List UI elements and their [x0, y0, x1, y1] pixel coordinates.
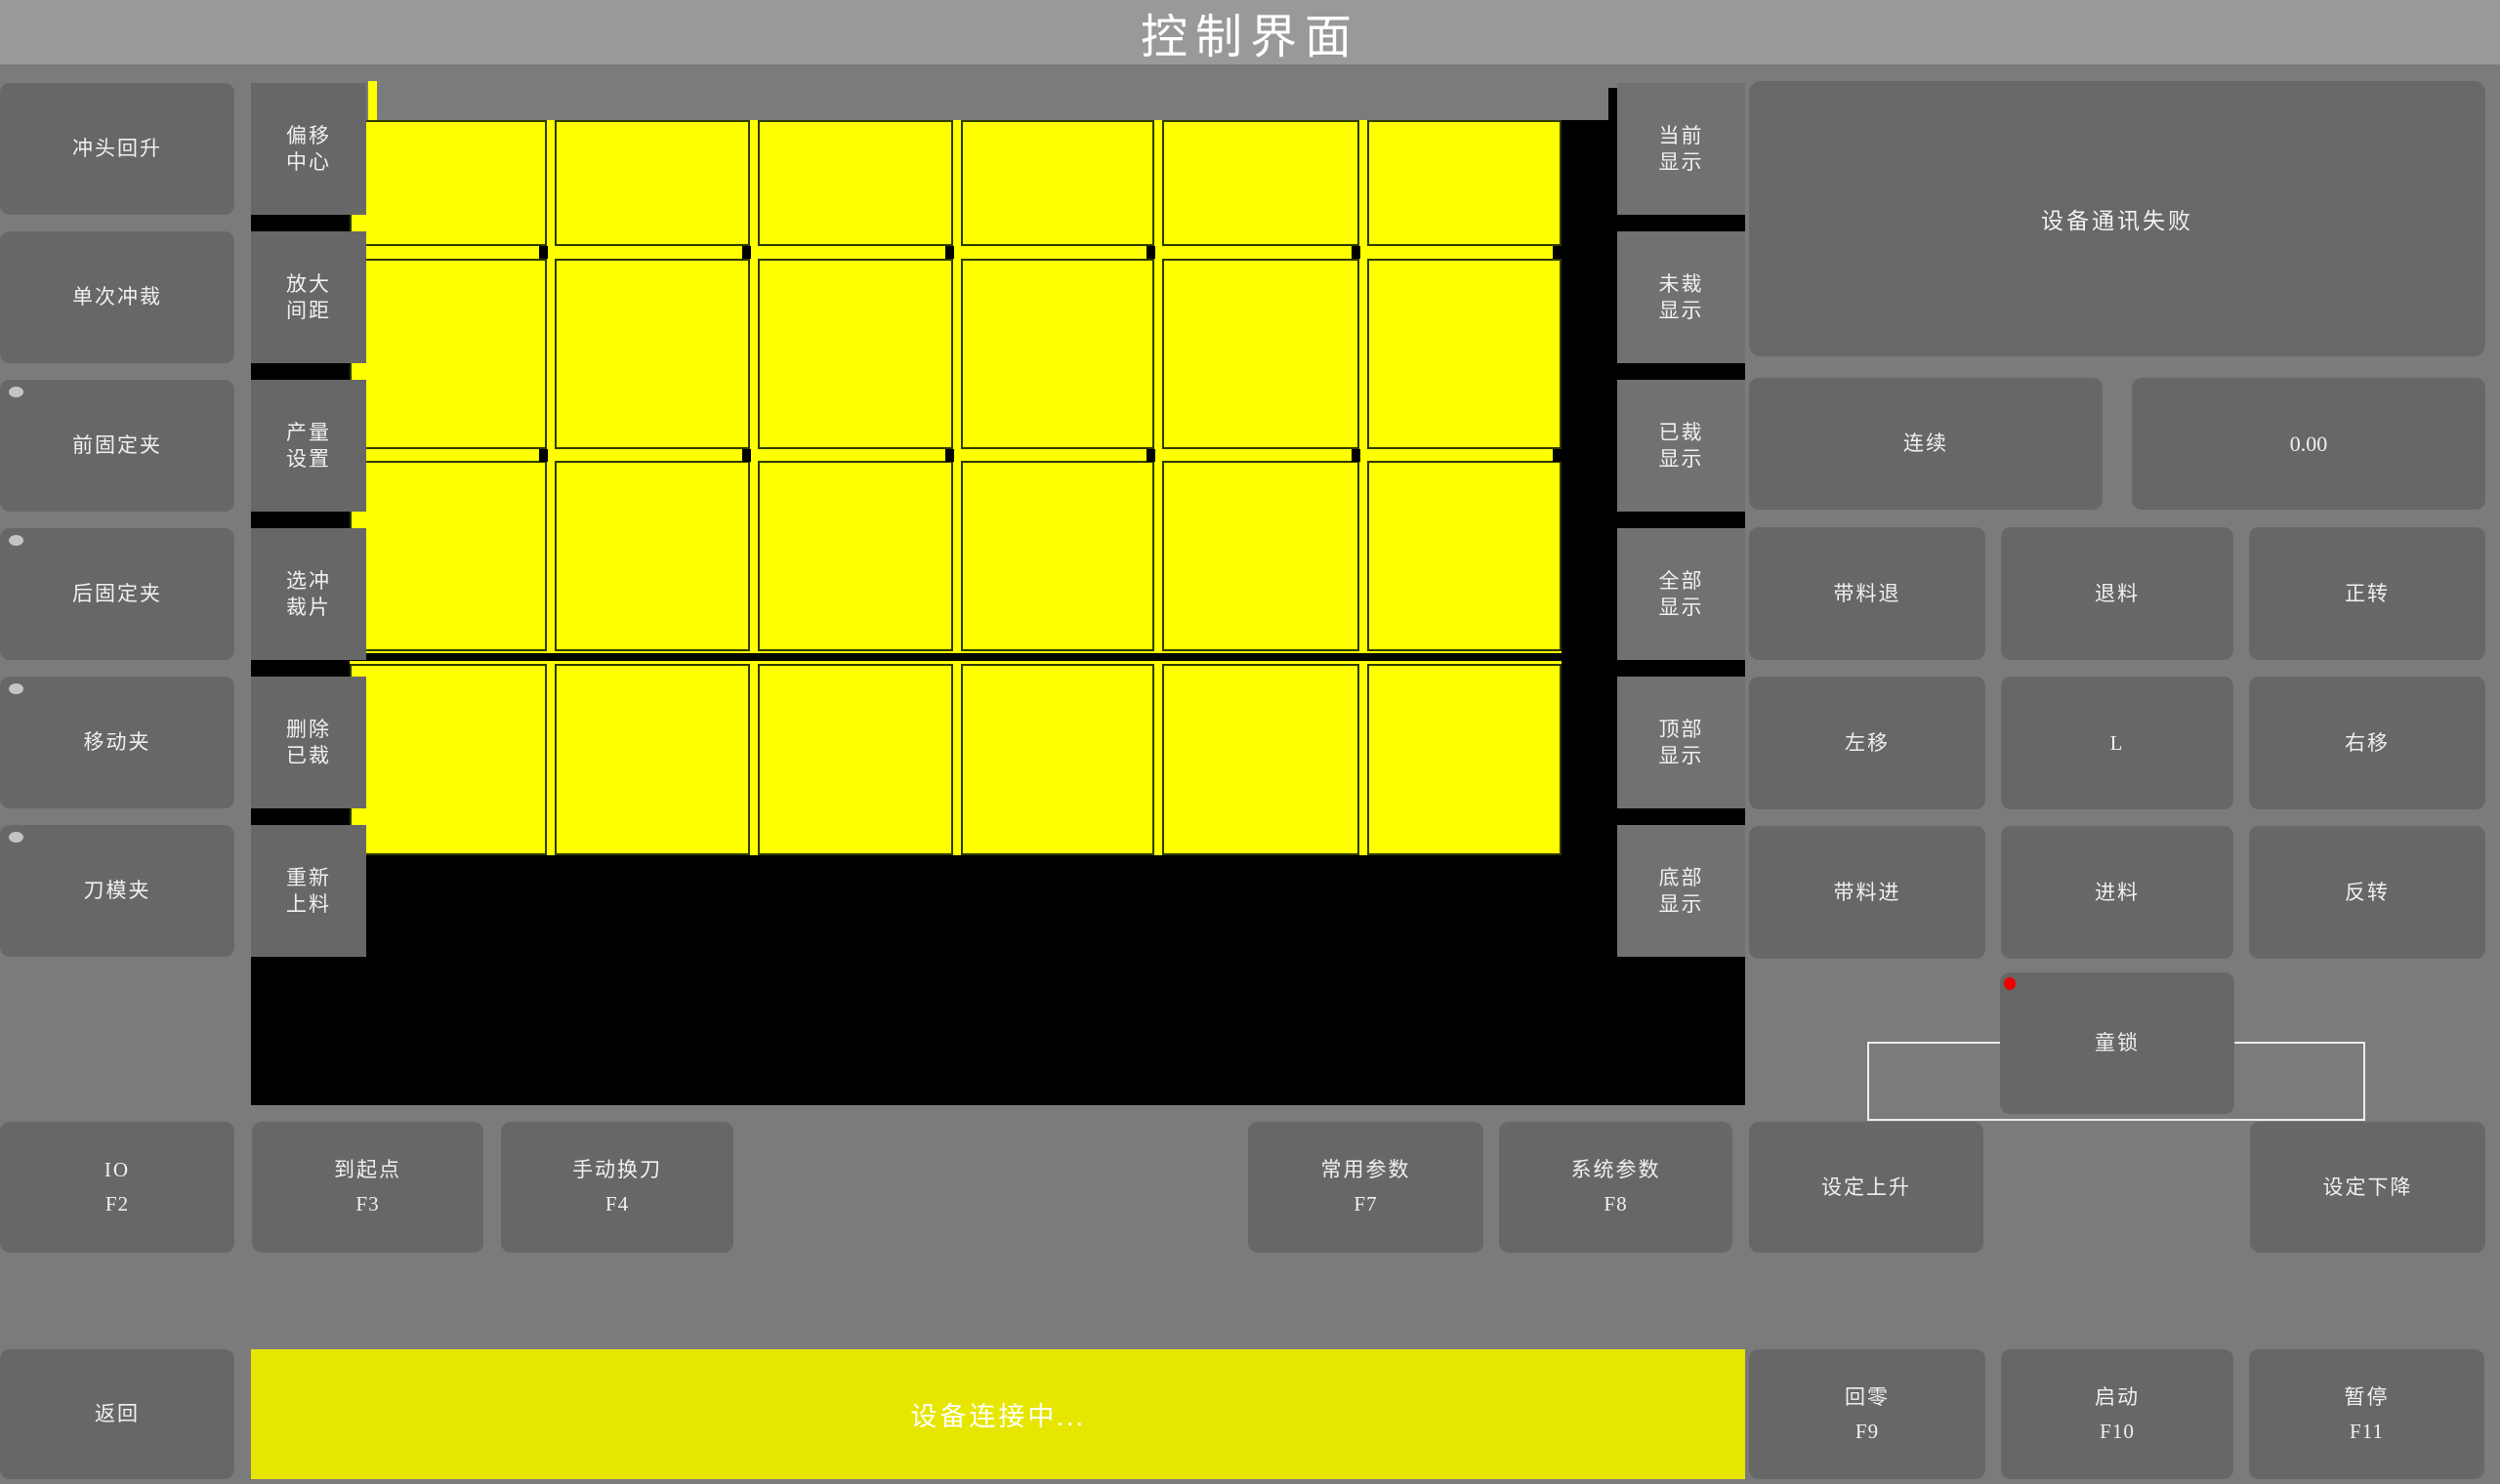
button-label: 底部: [1659, 865, 1704, 891]
button-label: 顶部: [1659, 717, 1704, 743]
button-punch-return[interactable]: 冲头回升: [0, 83, 234, 215]
button-label: 未裁: [1659, 271, 1704, 298]
button-label: 退料: [2095, 581, 2140, 607]
cut-layout-grid[interactable]: [350, 120, 1562, 855]
button-label: 已裁: [1659, 420, 1704, 446]
button-label: 冲头回升: [72, 136, 162, 162]
clamp-indicator-dot: [9, 387, 23, 397]
button-label: 显示: [1659, 298, 1704, 324]
button-show-current[interactable]: 当前显示: [1617, 83, 1745, 215]
cut-piece[interactable]: [555, 259, 750, 449]
piece-corner-notch: [1553, 449, 1562, 462]
cut-piece[interactable]: [961, 664, 1154, 855]
button-feed-material[interactable]: 进料: [2001, 826, 2233, 959]
button-common-params-f7[interactable]: 常用参数F7: [1248, 1122, 1483, 1253]
button-label: 产量: [286, 420, 331, 446]
button-label: 选冲: [286, 568, 331, 595]
button-fkey: F10: [2100, 1419, 2135, 1445]
button-io-f2[interactable]: IOF2: [0, 1122, 234, 1253]
button-show-bottom[interactable]: 底部显示: [1617, 825, 1745, 957]
button-label: 返回: [95, 1401, 140, 1427]
button-set-descend[interactable]: 设定下降: [2250, 1122, 2485, 1253]
button-fkey: F11: [2350, 1419, 2384, 1445]
button-label: 进料: [2095, 880, 2140, 906]
mode-button-continuous[interactable]: 连续: [1749, 378, 2103, 510]
button-move-left[interactable]: 左移: [1749, 677, 1985, 809]
button-label: 设定上升: [1821, 1175, 1911, 1201]
button-rear-clamp[interactable]: 后固定夹: [0, 528, 234, 660]
status-text: 设备连接中...: [910, 1395, 1085, 1433]
button-output-setting[interactable]: 产量设置: [251, 380, 366, 512]
button-fkey: F2: [105, 1191, 129, 1217]
button-label: 间距: [286, 298, 331, 324]
button-start-f10[interactable]: 启动F10: [2001, 1349, 2233, 1479]
button-system-params-f8[interactable]: 系统参数F8: [1499, 1122, 1732, 1253]
cut-piece[interactable]: [961, 461, 1154, 651]
button-label: 后固定夹: [72, 581, 162, 607]
button-label: 启动: [2095, 1384, 2140, 1411]
button-front-clamp[interactable]: 前固定夹: [0, 380, 234, 512]
button-label: 右移: [2345, 730, 2390, 757]
button-strip-back[interactable]: 带料退: [1749, 527, 1985, 660]
button-reload-material[interactable]: 重新上料: [251, 825, 366, 957]
button-label: 重新: [286, 865, 331, 891]
cut-piece[interactable]: [350, 461, 547, 651]
button-label: 显示: [1659, 595, 1704, 621]
piece-corner-notch: [742, 246, 751, 259]
device-message-box: 设备通讯失败: [1749, 81, 2485, 356]
button-show-all[interactable]: 全部显示: [1617, 528, 1745, 660]
value-display[interactable]: 0.00: [2132, 378, 2485, 510]
button-label: 显示: [1659, 891, 1704, 918]
button-back[interactable]: 返回: [0, 1349, 234, 1479]
button-label: 常用参数: [1321, 1157, 1411, 1183]
cut-piece[interactable]: [555, 664, 750, 855]
button-die-clamp[interactable]: 刀模夹: [0, 825, 234, 957]
row-separator-band: [350, 653, 1562, 661]
cut-piece[interactable]: [758, 461, 953, 651]
button-home-f9[interactable]: 回零F9: [1749, 1349, 1985, 1479]
piece-corner-notch: [945, 246, 954, 259]
status-bar: 设备连接中...: [251, 1349, 1745, 1479]
cut-piece[interactable]: [961, 259, 1154, 449]
button-label: 到起点: [334, 1157, 401, 1183]
cut-piece[interactable]: [1162, 259, 1359, 449]
button-label: 前固定夹: [72, 433, 162, 459]
button-label: 上料: [286, 891, 331, 918]
button-forward-rotate[interactable]: 正转: [2249, 527, 2485, 660]
clamp-indicator-dot: [9, 683, 23, 694]
button-set-rise[interactable]: 设定上升: [1749, 1122, 1983, 1253]
button-label: 连续: [1903, 431, 1948, 457]
child-lock-red-indicator: [2004, 977, 2016, 990]
cut-piece[interactable]: [1162, 120, 1359, 246]
cut-piece[interactable]: [350, 120, 547, 246]
sheet-edge-strip: [368, 81, 377, 120]
cut-piece[interactable]: [758, 120, 953, 246]
button-offset-center[interactable]: 偏移中心: [251, 83, 366, 215]
button-label: 显示: [1659, 743, 1704, 769]
button-fkey: F3: [355, 1191, 379, 1217]
button-label: 回零: [1845, 1384, 1890, 1411]
control-screen: 控制界面 冲头回升 单次冲裁 前固定夹 后固定夹 移动夹 刀模夹 偏移中心 放大…: [0, 0, 2500, 1484]
piece-corner-notch: [1352, 449, 1360, 462]
cut-piece[interactable]: [1367, 461, 1562, 651]
button-label: 裁片: [286, 595, 331, 621]
device-message: 设备通讯失败: [2041, 202, 2193, 235]
piece-corner-notch: [945, 449, 954, 462]
button-eject-material[interactable]: 退料: [2001, 527, 2233, 660]
button-show-cut[interactable]: 已裁显示: [1617, 380, 1745, 512]
button-to-origin-f3[interactable]: 到起点F3: [252, 1122, 483, 1253]
cut-piece[interactable]: [350, 664, 547, 855]
clamp-indicator-dot: [9, 832, 23, 843]
button-label: 放大: [286, 271, 331, 298]
cut-piece[interactable]: [1367, 259, 1562, 449]
button-label: 单次冲裁: [72, 284, 162, 310]
cut-piece[interactable]: [758, 259, 953, 449]
button-label: 显示: [1659, 149, 1704, 176]
page-title: 控制界面: [1141, 0, 1359, 66]
piece-corner-notch: [742, 449, 751, 462]
button-label: 童锁: [2095, 1030, 2140, 1056]
button-manual-tool-change-f4[interactable]: 手动换刀F4: [501, 1122, 733, 1253]
cut-piece[interactable]: [555, 120, 750, 246]
button-show-top[interactable]: 顶部显示: [1617, 677, 1745, 808]
button-fkey: F8: [1604, 1191, 1627, 1217]
button-label: 正转: [2345, 581, 2390, 607]
cut-piece[interactable]: [1367, 120, 1562, 246]
button-label: 删除: [286, 717, 331, 743]
button-move-right[interactable]: 右移: [2249, 677, 2485, 809]
button-label: L: [2110, 730, 2125, 757]
cut-piece[interactable]: [1162, 461, 1359, 651]
cut-piece[interactable]: [1367, 664, 1562, 855]
button-l[interactable]: L: [2001, 677, 2233, 809]
button-label: 系统参数: [1571, 1157, 1661, 1183]
piece-corner-notch: [539, 449, 548, 462]
button-single-punch[interactable]: 单次冲裁: [0, 231, 234, 363]
button-label: 刀模夹: [84, 878, 151, 904]
cut-piece[interactable]: [350, 259, 547, 449]
button-fkey: F4: [605, 1191, 629, 1217]
button-label: 暂停: [2345, 1384, 2390, 1411]
button-child-lock[interactable]: 童锁: [2000, 972, 2234, 1114]
button-label: IO: [104, 1157, 130, 1183]
button-delete-cut[interactable]: 删除已裁: [251, 677, 366, 808]
button-show-uncut[interactable]: 未裁显示: [1617, 231, 1745, 363]
button-label: 设定下降: [2323, 1175, 2413, 1201]
piece-corner-notch: [1553, 246, 1562, 259]
cut-piece[interactable]: [758, 664, 953, 855]
cut-piece[interactable]: [555, 461, 750, 651]
button-label: 中心: [286, 149, 331, 176]
piece-corner-notch: [1352, 246, 1360, 259]
button-moving-clamp[interactable]: 移动夹: [0, 677, 234, 808]
button-label: 已裁: [286, 743, 331, 769]
button-select-piece[interactable]: 选冲裁片: [251, 528, 366, 660]
button-reverse-rotate[interactable]: 反转: [2249, 826, 2485, 959]
button-label: 带料进: [1834, 880, 1901, 906]
button-label: 设置: [286, 446, 331, 473]
button-strip-forward[interactable]: 带料进: [1749, 826, 1985, 959]
button-pause-f11[interactable]: 暂停F11: [2249, 1349, 2484, 1479]
piece-corner-notch: [539, 246, 548, 259]
canvas-top-band: [350, 88, 1608, 120]
cut-layout-canvas[interactable]: [251, 88, 1745, 1105]
button-label: 反转: [2345, 880, 2390, 906]
button-label: 手动换刀: [572, 1157, 662, 1183]
piece-corner-notch: [1146, 449, 1155, 462]
button-enlarge-spacing[interactable]: 放大间距: [251, 231, 366, 363]
button-fkey: F7: [1354, 1191, 1377, 1217]
button-fkey: F9: [1855, 1419, 1879, 1445]
button-label: 偏移: [286, 123, 331, 149]
cut-piece[interactable]: [961, 120, 1154, 246]
button-label: 显示: [1659, 446, 1704, 473]
button-label: 移动夹: [84, 729, 151, 756]
button-label: 当前: [1659, 123, 1704, 149]
button-label: 全部: [1659, 568, 1704, 595]
title-bar: 控制界面: [0, 0, 2500, 64]
value-text: 0.00: [2290, 431, 2328, 457]
clamp-indicator-dot: [9, 535, 23, 546]
button-label: 带料退: [1834, 581, 1901, 607]
piece-corner-notch: [1146, 246, 1155, 259]
cut-piece[interactable]: [1162, 664, 1359, 855]
button-label: 左移: [1845, 730, 1890, 757]
